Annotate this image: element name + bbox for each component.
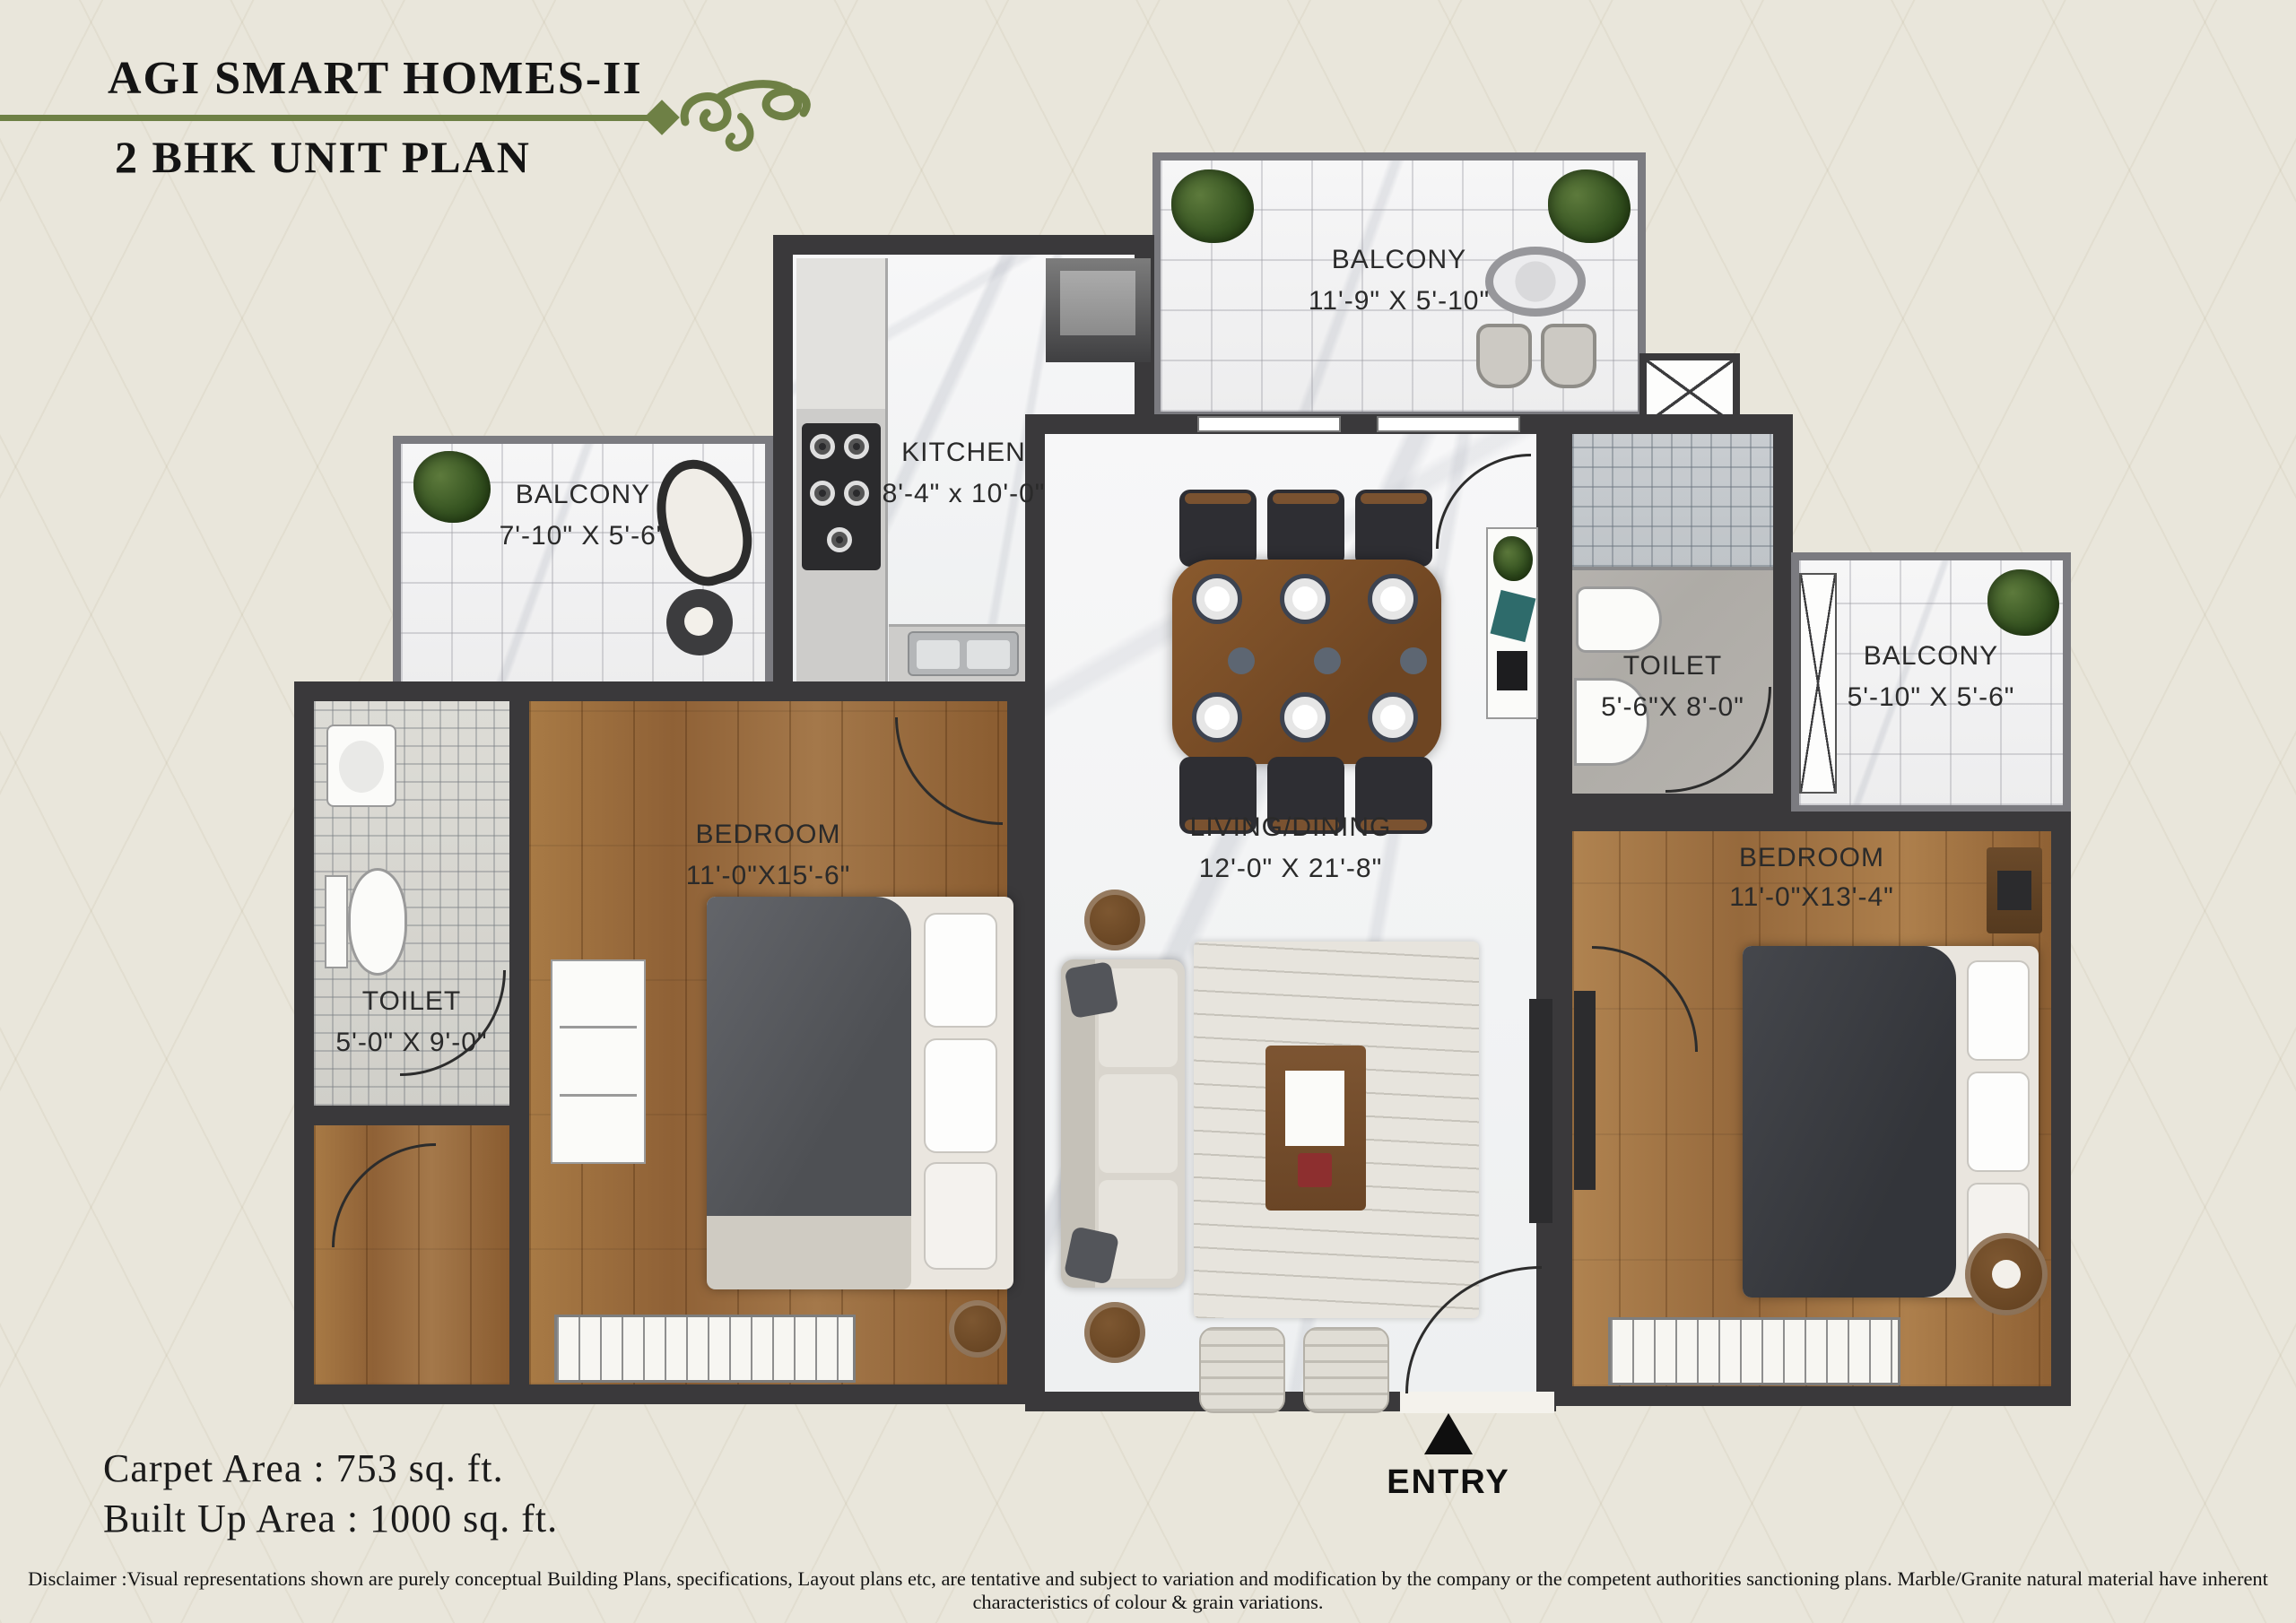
room-bedroom-right: BEDROOM 11'-0"X13'-4" <box>1552 811 2071 1406</box>
living-dining-name: LIVING/DINING <box>1045 807 1536 848</box>
console-shelf <box>1486 527 1538 719</box>
flourish-icon <box>678 75 822 165</box>
living-dining-label: LIVING/DINING 12'-0" X 21'-8" <box>1045 807 1536 890</box>
plate-icon <box>1280 692 1330 742</box>
kitchen-size: 8'-4" x 10'-0" <box>793 473 1135 515</box>
wardrobe <box>551 959 646 1164</box>
door-arc <box>332 1143 436 1247</box>
plate-icon <box>1368 692 1418 742</box>
cistern <box>325 875 348 968</box>
bedroom-right-size: 11'-0"X13'-4" <box>1572 878 2051 917</box>
entry-opening <box>1400 1392 1554 1413</box>
sink-basin <box>967 640 1010 669</box>
serving-plate <box>1228 647 1255 674</box>
wardrobe-handle <box>560 1026 637 1028</box>
throw-pillow <box>1065 961 1119 1019</box>
plant-icon <box>1987 569 2059 636</box>
room-toilet-left: TOILET 5'-0" X 9'-0" <box>294 681 529 1125</box>
page-subtitle: 2 BHK UNIT PLAN <box>115 131 531 183</box>
plate-icon <box>1192 574 1242 624</box>
rug-plate <box>1992 1260 2021 1289</box>
round-rug <box>1965 1233 2048 1315</box>
toilet-left-label: TOILET 5'-0" X 9'-0" <box>314 981 509 1063</box>
plant-icon <box>1548 169 1631 243</box>
decor-books <box>1491 590 1536 642</box>
balcony-right-name: BALCONY <box>1799 636 2063 677</box>
toilet-icon <box>1576 586 1662 653</box>
wardrobe-handle <box>560 1094 637 1097</box>
bedroom-right-label: BEDROOM 11'-0"X13'-4" <box>1572 838 2051 917</box>
door-arc <box>1592 946 1698 1052</box>
entry-arrow-icon <box>1424 1413 1473 1454</box>
serving-plate <box>1314 647 1341 674</box>
balcony-right-label: BALCONY 5'-10" X 5'-6" <box>1799 636 2063 718</box>
plant-icon <box>1171 169 1254 243</box>
toilet-right-size: 5'-6"X 8'-0" <box>1572 687 1773 728</box>
room-bedroom-left-extension <box>294 1106 529 1404</box>
coffee-table <box>1265 1046 1366 1211</box>
page-title: AGI SMART HOMES-II <box>108 52 643 105</box>
dining-chair <box>1267 490 1344 567</box>
pillow-icon <box>1967 1072 2030 1172</box>
balcony-left-size: 7'-10" X 5'-6" <box>401 516 765 557</box>
balcony-chair <box>1541 324 1596 388</box>
decor-item <box>1298 1153 1332 1187</box>
plate-icon <box>1368 574 1418 624</box>
throw-blanket <box>707 1216 911 1289</box>
kitchen-name: KITCHEN <box>793 432 1135 473</box>
side-table <box>1084 890 1145 950</box>
sofa-cushion <box>1099 1074 1178 1173</box>
room-living-dining: LIVING/DINING 12'-0" X 21'-8" <box>1025 414 1556 1411</box>
toilet-right-name: TOILET <box>1572 646 1773 687</box>
room-bedroom-left: BEDROOM 11'-0"X15'-6" <box>509 681 1027 1404</box>
balcony-left-label: BALCONY 7'-10" X 5'-6" <box>401 474 765 557</box>
built-up-area-text: Built Up Area : 1000 sq. ft. <box>103 1496 558 1541</box>
room-balcony-top: BALCONY 11'-9" X 5'-10" <box>1152 152 1646 420</box>
tv-unit <box>1529 999 1554 1223</box>
balcony-top-size: 11'-9" X 5'-10" <box>1161 281 1638 322</box>
dining-chair <box>1355 490 1432 567</box>
sofa-icon <box>1061 959 1185 1288</box>
window <box>1197 416 1341 432</box>
plate-icon <box>1280 574 1330 624</box>
living-dining-size: 12'-0" X 21'-8" <box>1045 848 1536 890</box>
pillow-icon <box>1967 960 2030 1061</box>
bedroom-left-label: BEDROOM 11'-0"X15'-6" <box>529 814 1007 897</box>
toilet-right-label: TOILET 5'-6"X 8'-0" <box>1572 646 1773 728</box>
pillow-icon <box>924 913 997 1028</box>
basin-bowl <box>339 741 384 793</box>
washbasin-icon <box>326 725 396 807</box>
balcony-top-name: BALCONY <box>1161 239 1638 281</box>
kitchen-counter-upper <box>796 258 888 409</box>
bedroom-right-name: BEDROOM <box>1572 838 2051 878</box>
bed-icon <box>707 897 1013 1289</box>
door-arc <box>895 717 1003 825</box>
window-sill <box>1608 1317 1900 1385</box>
title-divider-line <box>0 115 665 121</box>
dining-chair <box>1179 490 1257 567</box>
balcony-left-name: BALCONY <box>401 474 765 516</box>
kitchen-label: KITCHEN 8'-4" x 10'-0" <box>793 432 1135 515</box>
side-stool <box>949 1300 1006 1358</box>
bedroom-left-size: 11'-0"X15'-6" <box>529 855 1007 897</box>
armchair <box>1199 1327 1285 1413</box>
table-plate <box>684 607 713 636</box>
toilet-left-name: TOILET <box>314 981 509 1022</box>
plate-icon <box>1192 692 1242 742</box>
armchair <box>1303 1327 1389 1413</box>
decor-item <box>1497 651 1527 690</box>
bedroom-left-name: BEDROOM <box>529 814 1007 855</box>
cabinet-top <box>1060 271 1135 335</box>
disclaimer-text: Disclaimer :Visual representations shown… <box>0 1567 2296 1614</box>
bowl <box>348 868 407 976</box>
toilet-left-size: 5'-0" X 9'-0" <box>314 1022 509 1063</box>
tray <box>1285 1071 1344 1146</box>
dining-table <box>1172 560 1441 764</box>
duvet <box>1743 946 1956 1298</box>
pillow-icon <box>924 1162 997 1270</box>
room-toilet-right: TOILET 5'-6"X 8'-0" <box>1552 414 1793 813</box>
toilet-icon <box>325 868 411 977</box>
room-balcony-right: BALCONY 5'-10" X 5'-6" <box>1791 552 2071 813</box>
side-table <box>1084 1302 1145 1363</box>
balcony-door-arc <box>1436 454 1531 549</box>
carpet-area-text: Carpet Area : 753 sq. ft. <box>103 1445 504 1491</box>
entry-label: ENTRY <box>1359 1463 1538 1502</box>
serving-plate <box>1400 647 1427 674</box>
divider-diamond-icon <box>644 100 680 135</box>
balcony-round-table <box>666 589 733 655</box>
kitchen-dark-cabinet <box>1046 258 1151 362</box>
balcony-top-label: BALCONY 11'-9" X 5'-10" <box>1161 239 1638 322</box>
window <box>1377 416 1520 432</box>
pillow-icon <box>924 1038 997 1153</box>
sink-icon <box>908 631 1019 676</box>
balcony-chair <box>1476 324 1532 388</box>
mosaic-feature-wall <box>1572 434 1773 570</box>
window-sill <box>554 1315 856 1383</box>
burner-icon <box>827 527 852 552</box>
balcony-right-size: 5'-10" X 5'-6" <box>1799 677 2063 718</box>
sink-basin <box>917 640 960 669</box>
room-balcony-left: BALCONY 7'-10" X 5'-6" <box>393 436 773 692</box>
floor-plan-page: { "header": { "title": "AGI SMART HOMES-… <box>0 0 2296 1623</box>
